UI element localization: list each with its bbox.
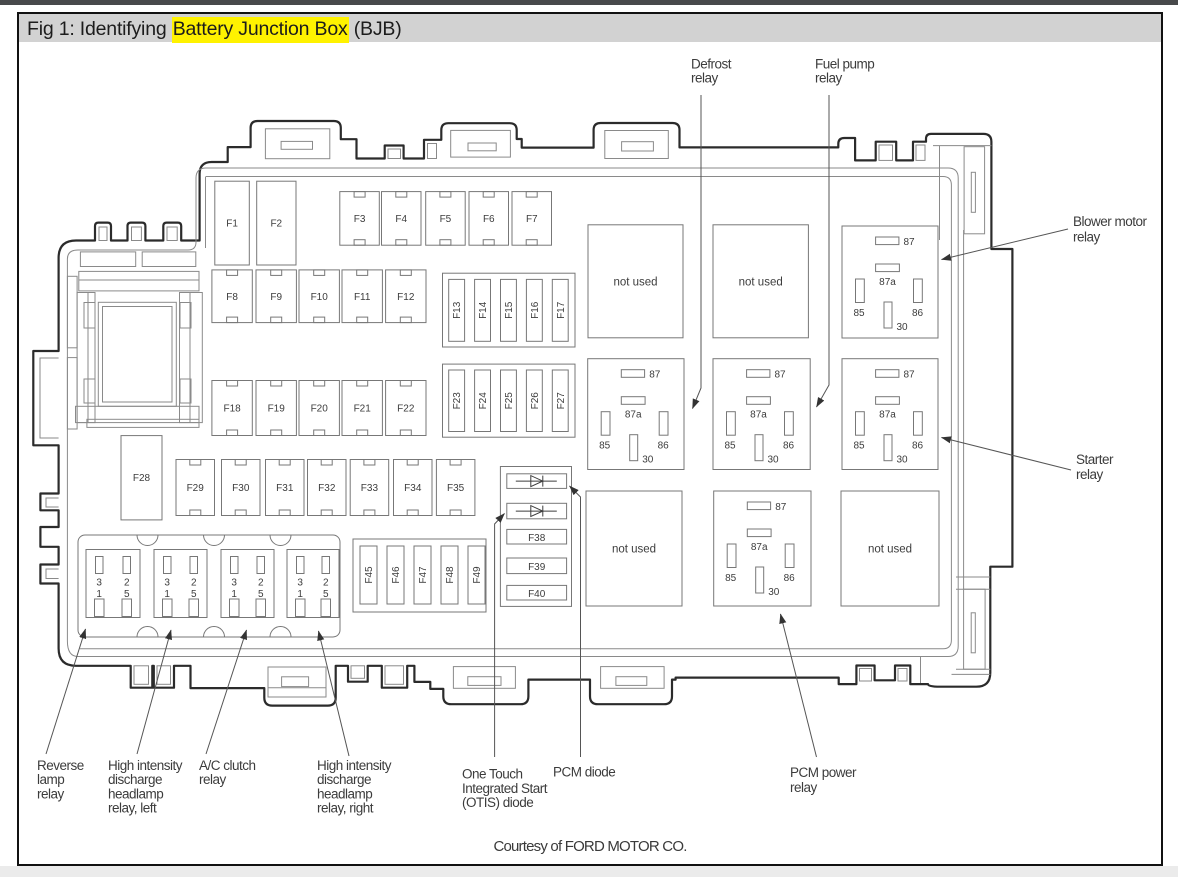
- svg-text:85: 85: [724, 441, 736, 452]
- svg-text:F6: F6: [483, 214, 495, 225]
- svg-text:High intensity discharge headl: High intensity discharge headlamp relay,…: [317, 758, 394, 816]
- svg-text:85: 85: [853, 441, 865, 452]
- svg-text:1: 1: [96, 589, 102, 600]
- svg-text:Starter relay: Starter relay: [1076, 452, 1116, 482]
- svg-text:F14: F14: [478, 301, 489, 319]
- svg-text:F16: F16: [530, 301, 541, 319]
- svg-text:87: 87: [775, 502, 787, 513]
- svg-text:F33: F33: [361, 483, 379, 494]
- svg-text:F40: F40: [528, 589, 546, 600]
- svg-text:F49: F49: [472, 566, 483, 584]
- svg-text:3: 3: [164, 578, 170, 589]
- svg-text:30: 30: [897, 322, 909, 333]
- svg-text:85: 85: [599, 441, 611, 452]
- svg-text:F12: F12: [397, 292, 415, 303]
- svg-text:85: 85: [853, 308, 865, 319]
- svg-text:F38: F38: [528, 533, 546, 544]
- svg-text:F7: F7: [526, 214, 538, 225]
- svg-text:F20: F20: [311, 404, 329, 415]
- svg-text:F28: F28: [133, 473, 151, 484]
- svg-text:PCM power relay: PCM power relay: [790, 765, 859, 795]
- svg-text:F31: F31: [276, 483, 294, 494]
- svg-text:2: 2: [258, 578, 264, 589]
- svg-text:3: 3: [297, 578, 303, 589]
- svg-text:86: 86: [658, 441, 670, 452]
- svg-text:F4: F4: [395, 214, 407, 225]
- svg-text:F9: F9: [270, 292, 282, 303]
- svg-text:F19: F19: [268, 404, 286, 415]
- svg-text:87: 87: [649, 370, 661, 381]
- svg-text:87: 87: [775, 370, 787, 381]
- svg-text:30: 30: [642, 455, 654, 466]
- svg-text:Fuel pump relay: Fuel pump relay: [815, 57, 878, 86]
- svg-text:F5: F5: [440, 214, 452, 225]
- svg-text:30: 30: [897, 455, 909, 466]
- svg-text:F48: F48: [445, 566, 456, 584]
- svg-text:not used: not used: [739, 276, 783, 288]
- svg-text:Reverse lamp relay: Reverse lamp relay: [37, 758, 87, 802]
- svg-text:85: 85: [725, 573, 737, 584]
- svg-text:F1: F1: [226, 219, 238, 230]
- svg-text:5: 5: [323, 589, 329, 600]
- svg-text:High intensity discharge headl: High intensity discharge headlamp relay,…: [108, 758, 185, 816]
- svg-text:F22: F22: [397, 404, 415, 415]
- svg-text:87a: 87a: [879, 410, 896, 421]
- svg-text:F21: F21: [354, 404, 372, 415]
- svg-text:F47: F47: [418, 566, 429, 584]
- svg-text:2: 2: [191, 578, 197, 589]
- svg-text:86: 86: [912, 308, 924, 319]
- svg-text:1: 1: [231, 589, 237, 600]
- svg-text:F2: F2: [270, 219, 282, 230]
- svg-text:F39: F39: [528, 562, 546, 573]
- svg-text:F13: F13: [452, 301, 463, 319]
- svg-text:F11: F11: [354, 292, 371, 303]
- svg-text:86: 86: [783, 441, 795, 452]
- svg-text:86: 86: [912, 441, 924, 452]
- svg-text:F25: F25: [504, 392, 515, 410]
- svg-text:F27: F27: [556, 392, 567, 410]
- svg-text:F26: F26: [530, 392, 541, 410]
- svg-text:1: 1: [297, 589, 303, 600]
- svg-text:F3: F3: [354, 214, 366, 225]
- svg-text:30: 30: [768, 587, 780, 598]
- svg-text:86: 86: [784, 573, 796, 584]
- svg-text:F24: F24: [478, 392, 489, 410]
- svg-text:F15: F15: [504, 301, 515, 319]
- svg-text:3: 3: [96, 578, 102, 589]
- svg-text:5: 5: [191, 589, 197, 600]
- svg-text:F35: F35: [447, 483, 465, 494]
- svg-text:F46: F46: [391, 566, 402, 584]
- svg-text:Blower motor relay: Blower motor relay: [1073, 214, 1150, 244]
- svg-text:5: 5: [258, 589, 264, 600]
- svg-text:F34: F34: [404, 483, 422, 494]
- svg-text:not used: not used: [612, 544, 656, 556]
- svg-text:87a: 87a: [750, 410, 767, 421]
- svg-text:Defrost relay: Defrost relay: [691, 57, 734, 86]
- svg-text:A/C clutch relay: A/C clutch relay: [199, 758, 259, 787]
- svg-text:not used: not used: [868, 544, 912, 556]
- svg-text:2: 2: [323, 578, 329, 589]
- svg-text:1: 1: [164, 589, 170, 600]
- svg-text:One Touch Integrated Start (OT: One Touch Integrated Start (OTIS) diode: [462, 767, 550, 811]
- svg-text:F29: F29: [187, 483, 205, 494]
- svg-text:F32: F32: [318, 483, 336, 494]
- svg-text:30: 30: [768, 455, 780, 466]
- svg-text:F45: F45: [364, 566, 375, 584]
- svg-text:3: 3: [231, 578, 237, 589]
- svg-text:F8: F8: [226, 292, 238, 303]
- svg-text:87a: 87a: [879, 277, 896, 288]
- svg-text:2: 2: [124, 578, 130, 589]
- svg-text:F30: F30: [232, 483, 250, 494]
- svg-text:F23: F23: [452, 392, 463, 410]
- svg-text:PCM diode: PCM diode: [553, 765, 615, 780]
- svg-text:87a: 87a: [625, 410, 642, 421]
- svg-text:5: 5: [124, 589, 130, 600]
- svg-text:F17: F17: [556, 301, 567, 319]
- svg-text:F10: F10: [311, 292, 329, 303]
- svg-text:87: 87: [904, 370, 916, 381]
- svg-text:87a: 87a: [751, 542, 768, 553]
- svg-text:not used: not used: [613, 276, 657, 288]
- svg-text:87: 87: [904, 237, 916, 248]
- svg-text:F18: F18: [223, 404, 241, 415]
